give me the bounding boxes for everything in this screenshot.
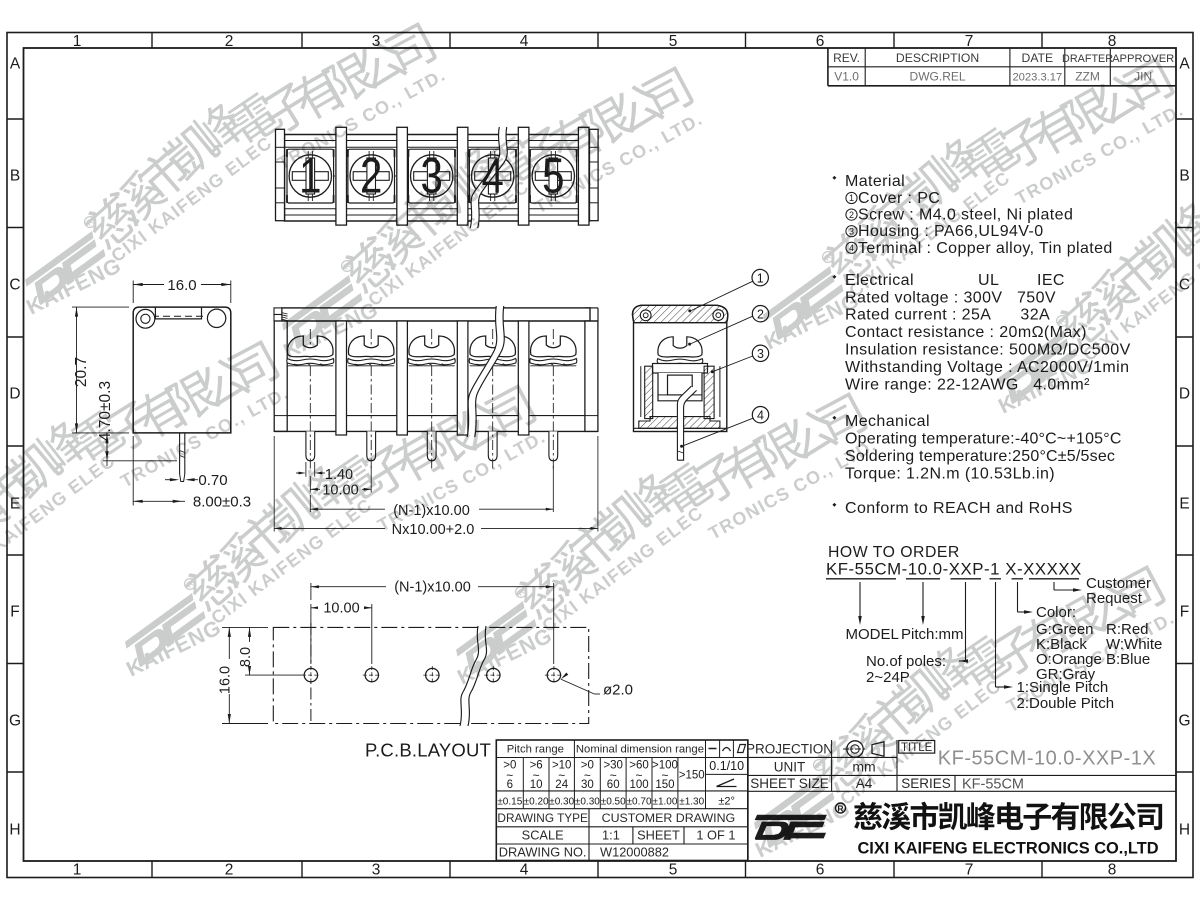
svg-text:CUSTOMER DRAWING: CUSTOMER DRAWING bbox=[602, 811, 736, 825]
svg-text:KF-55CM: KF-55CM bbox=[962, 777, 1024, 793]
svg-text:2: 2 bbox=[225, 862, 234, 879]
svg-text:Contact resistance : 20mΩ(Max): Contact resistance : 20mΩ(Max) bbox=[845, 324, 1087, 341]
svg-text:CIXI KAIFENG ELEC: CIXI KAIFENG ELEC bbox=[0, 450, 119, 584]
svg-text:0.1/10: 0.1/10 bbox=[709, 759, 744, 773]
svg-text:±0.70: ±0.70 bbox=[627, 796, 652, 807]
svg-text:P.C.B.LAYOUT: P.C.B.LAYOUT bbox=[365, 740, 491, 761]
svg-text:PROJECTION: PROJECTION bbox=[746, 742, 833, 757]
svg-text:W12000882: W12000882 bbox=[600, 844, 669, 859]
svg-text:8: 8 bbox=[1108, 33, 1117, 50]
svg-text:5: 5 bbox=[669, 33, 678, 50]
svg-text:3: 3 bbox=[757, 347, 764, 361]
svg-text:10: 10 bbox=[530, 779, 543, 791]
svg-text:E: E bbox=[1179, 496, 1189, 513]
svg-text:A: A bbox=[10, 56, 21, 73]
svg-text:G: G bbox=[9, 713, 21, 730]
svg-text:20.7: 20.7 bbox=[73, 357, 90, 387]
svg-text:3: 3 bbox=[372, 862, 381, 879]
svg-text:APPROVER: APPROVER bbox=[1112, 53, 1174, 65]
svg-text:2: 2 bbox=[225, 33, 234, 50]
svg-text:CIXI KAIFENG ELECTRONICS CO.,L: CIXI KAIFENG ELECTRONICS CO.,LTD bbox=[857, 840, 1158, 858]
svg-text:100: 100 bbox=[629, 779, 648, 791]
svg-text:±0.30: ±0.30 bbox=[549, 796, 574, 807]
svg-text:6: 6 bbox=[816, 862, 825, 879]
svg-text:±0.50: ±0.50 bbox=[601, 796, 626, 807]
svg-text:>150: >150 bbox=[679, 770, 705, 782]
svg-text:Soldering temperature:250°C±5/: Soldering temperature:250°C±5/5sec bbox=[845, 448, 1115, 465]
svg-text:16.0: 16.0 bbox=[167, 277, 196, 294]
svg-text:V1.0: V1.0 bbox=[834, 70, 859, 84]
svg-text:Rated current : 25A 32A: Rated current : 25A 32A bbox=[845, 307, 1050, 324]
svg-text:Nx10.00+2.0: Nx10.00+2.0 bbox=[392, 522, 475, 538]
svg-text:7: 7 bbox=[965, 33, 974, 50]
svg-text:Torque: 1.2N.m (10.53Lb.in): Torque: 1.2N.m (10.53Lb.in) bbox=[845, 466, 1055, 483]
svg-text:Mechanical: Mechanical bbox=[845, 413, 930, 430]
svg-text:Pitch:mm: Pitch:mm bbox=[901, 626, 964, 643]
svg-text:2~24P: 2~24P bbox=[866, 669, 910, 686]
svg-text:2: 2 bbox=[757, 308, 764, 322]
svg-text:16.0: 16.0 bbox=[218, 666, 234, 694]
svg-text:1: 1 bbox=[73, 862, 82, 879]
svg-text:DRAWING NO.: DRAWING NO. bbox=[499, 844, 587, 859]
svg-text:30: 30 bbox=[581, 779, 594, 791]
svg-text:1:1: 1:1 bbox=[602, 827, 620, 842]
svg-text:8.00±0.3: 8.00±0.3 bbox=[193, 494, 251, 511]
svg-text:ø2.0: ø2.0 bbox=[603, 682, 633, 699]
svg-text:6: 6 bbox=[507, 779, 513, 791]
svg-text:D: D bbox=[1179, 386, 1190, 403]
svg-text:D: D bbox=[9, 386, 20, 403]
svg-text:DESCRIPTION: DESCRIPTION bbox=[896, 51, 979, 65]
svg-text:4: 4 bbox=[520, 33, 529, 50]
svg-text:Pitch range: Pitch range bbox=[507, 744, 564, 756]
svg-text:F: F bbox=[1180, 604, 1189, 621]
svg-text:8.0: 8.0 bbox=[238, 647, 254, 667]
svg-text:A: A bbox=[1179, 56, 1190, 73]
svg-text:REV.: REV. bbox=[833, 51, 860, 65]
svg-text:±0.20: ±0.20 bbox=[524, 796, 549, 807]
svg-text:150: 150 bbox=[655, 779, 674, 791]
svg-text:2023.3.17: 2023.3.17 bbox=[1012, 72, 1062, 84]
svg-text:SHEET: SHEET bbox=[637, 827, 680, 842]
svg-text:SCALE: SCALE bbox=[522, 827, 564, 842]
svg-text:4: 4 bbox=[757, 409, 764, 423]
svg-text:Rated voltage : 300V 750V: Rated voltage : 300V 750V bbox=[845, 290, 1056, 307]
svg-text:4: 4 bbox=[520, 862, 529, 879]
svg-text:IEC: IEC bbox=[1037, 272, 1065, 289]
svg-text:±1.30: ±1.30 bbox=[679, 796, 704, 807]
svg-text:Conform to REACH and RoHS: Conform to REACH and RoHS bbox=[845, 500, 1073, 517]
svg-text:1: 1 bbox=[757, 271, 764, 285]
svg-text:Nominal dimension range: Nominal dimension range bbox=[576, 744, 704, 756]
svg-text:DATE: DATE bbox=[1022, 51, 1054, 65]
svg-text:F: F bbox=[10, 604, 19, 621]
svg-text:UL: UL bbox=[978, 272, 999, 289]
svg-text:1 OF 1: 1 OF 1 bbox=[696, 827, 735, 842]
svg-text:±0.30: ±0.30 bbox=[575, 796, 600, 807]
svg-text:7: 7 bbox=[965, 862, 974, 879]
svg-text:ZZM: ZZM bbox=[1075, 70, 1100, 84]
svg-text:6: 6 bbox=[816, 33, 825, 50]
svg-text:10.00: 10.00 bbox=[323, 601, 359, 617]
svg-text:H: H bbox=[1179, 822, 1190, 839]
svg-text:DRAWING TYPE: DRAWING TYPE bbox=[497, 811, 588, 825]
svg-text:DRAFTER: DRAFTER bbox=[1062, 53, 1113, 65]
svg-text:±0.15: ±0.15 bbox=[497, 796, 522, 807]
svg-text:C: C bbox=[9, 277, 20, 294]
svg-text:HOW TO ORDER: HOW TO ORDER bbox=[828, 544, 960, 561]
svg-text:G: G bbox=[1178, 713, 1190, 730]
svg-text:B: B bbox=[10, 168, 20, 185]
svg-text:KF-55CM-10.0-XXP-1 X-XXXXX: KF-55CM-10.0-XXP-1 X-XXXXX bbox=[826, 560, 1082, 579]
svg-text:±2°: ±2° bbox=[718, 795, 735, 807]
svg-text:0.70: 0.70 bbox=[198, 472, 227, 489]
svg-text:KF-55CM-10.0-XXP-1X: KF-55CM-10.0-XXP-1X bbox=[938, 748, 1156, 770]
svg-text:60: 60 bbox=[607, 779, 620, 791]
svg-text:5: 5 bbox=[669, 862, 678, 879]
svg-text:MODEL: MODEL bbox=[846, 626, 899, 643]
svg-text:DWG.REL: DWG.REL bbox=[910, 70, 966, 84]
svg-text:B: B bbox=[1179, 168, 1189, 185]
svg-text:2: 2 bbox=[849, 210, 854, 220]
svg-text:H: H bbox=[9, 822, 20, 839]
svg-text:2: 2 bbox=[360, 149, 382, 204]
svg-text:UNIT: UNIT bbox=[774, 759, 806, 774]
svg-text:±1.00: ±1.00 bbox=[652, 796, 677, 807]
svg-text:(N-1)x10.00: (N-1)x10.00 bbox=[394, 580, 471, 596]
svg-text:1: 1 bbox=[849, 193, 854, 203]
svg-text:3: 3 bbox=[372, 33, 381, 50]
svg-text:24: 24 bbox=[555, 779, 568, 791]
svg-text:Material: Material bbox=[845, 173, 905, 190]
svg-text:SERIES: SERIES bbox=[901, 776, 951, 791]
svg-text:Operating temperature:-40°C~+1: Operating temperature:-40°C~+105°C bbox=[845, 431, 1122, 448]
svg-text:8: 8 bbox=[1108, 862, 1117, 879]
svg-text:1: 1 bbox=[73, 33, 82, 50]
